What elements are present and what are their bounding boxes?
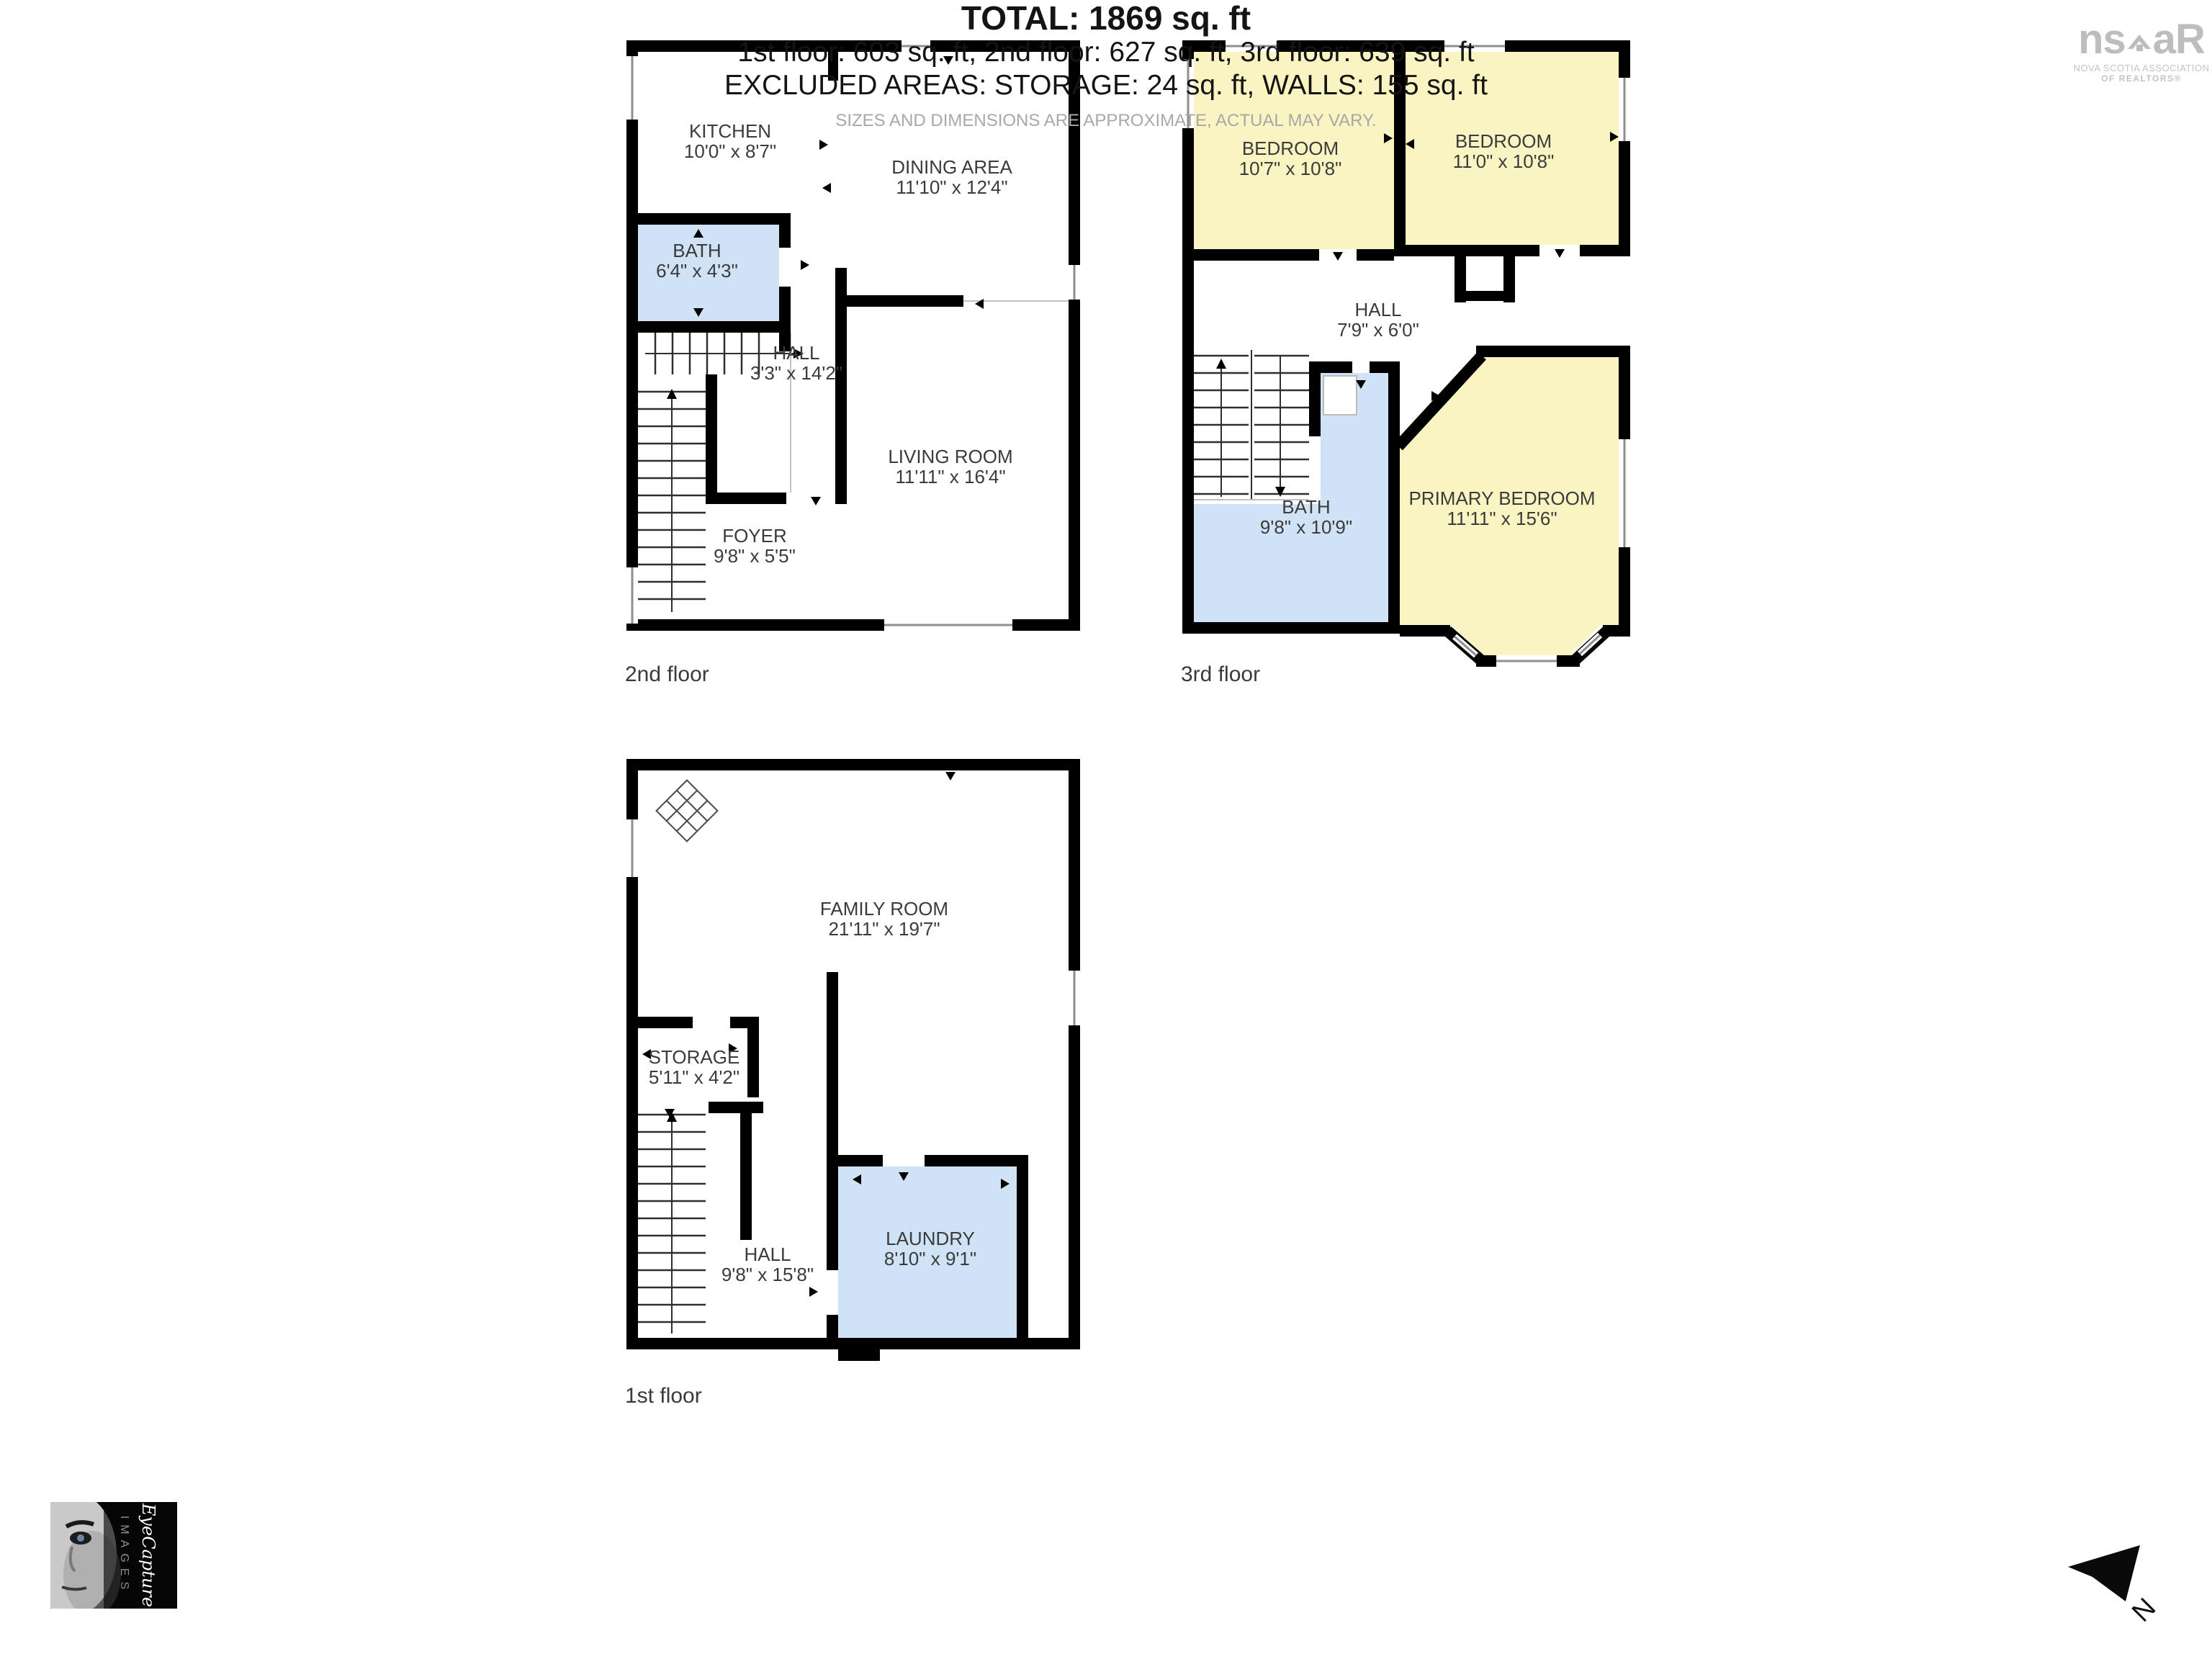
room-label-hall-2nd: HALL: [773, 342, 819, 364]
room-label-primary-bedroom: PRIMARY BEDROOM: [1408, 487, 1595, 509]
credit-caps-text: IMAGES: [117, 1502, 130, 1609]
room-dims-bath-3rd: 9'8" x 10'9": [1260, 516, 1352, 538]
room-dims-hall-2nd: 3'3" x 14'2": [750, 362, 842, 384]
credit-script-text: EyeCapture: [138, 1502, 158, 1609]
room-dims-hall-1st: 9'8" x 15'8": [721, 1264, 814, 1285]
room-dims-laundry: 8'10" x 9'1": [884, 1248, 976, 1269]
room-dims-primary-bedroom: 11'11" x 15'6": [1447, 508, 1557, 529]
staircase-3rd: [1194, 350, 1309, 500]
room-label-foyer: FOYER: [722, 525, 787, 547]
north-arrow-icon: N: [2068, 1545, 2169, 1646]
room-dims-bedroom-left: 10'7" x 10'8": [1239, 158, 1342, 179]
room-label-bath-2nd: BATH: [673, 240, 721, 261]
caption-1st-floor: 1st floor: [625, 1384, 702, 1408]
floor-plan-1st: FAMILY ROOM 21'11" x 19'7" STORAGE 5'11"…: [624, 755, 1084, 1363]
room-label-hall-1st: HALL: [744, 1244, 791, 1265]
room-dims-kitchen: 10'0" x 8'7": [684, 140, 776, 162]
room-label-living: LIVING ROOM: [888, 446, 1012, 467]
area-summary: TOTAL: 1869 sq. ft 1st floor: 603 sq. ft…: [0, 0, 2212, 135]
floor-plan-page: KITCHEN 10'0" x 8'7" DINING AREA 11'10" …: [0, 0, 2212, 1659]
excluded-areas: EXCLUDED AREAS: STORAGE: 24 sq. ft, WALL…: [0, 69, 2212, 102]
room-dims-family-room: 21'11" x 19'7": [828, 918, 940, 940]
north-label: N: [2126, 1593, 2162, 1628]
room-label-hall-3rd: HALL: [1354, 299, 1401, 320]
room-dims-bath-2nd: 6'4" x 4'3": [656, 260, 738, 282]
room-label-storage: STORAGE: [649, 1046, 740, 1068]
caption-3rd-floor: 3rd floor: [1181, 662, 1260, 687]
room-dims-dining: 11'10" x 12'4": [896, 176, 1007, 198]
room-dims-storage: 5'11" x 4'2": [649, 1066, 739, 1088]
disclaimer-text: SIZES AND DIMENSIONS ARE APPROXIMATE, AC…: [0, 107, 2212, 135]
room-label-family-room: FAMILY ROOM: [820, 898, 948, 920]
room-dims-bedroom-right: 11'0" x 10'8": [1453, 150, 1555, 172]
room-dims-foyer: 9'8" x 5'5": [714, 545, 796, 567]
room-label-bedroom-left: BEDROOM: [1242, 138, 1339, 159]
fireplace-icon: [657, 781, 718, 842]
caption-2nd-floor: 2nd floor: [625, 662, 709, 687]
room-label-bath-3rd: BATH: [1282, 496, 1330, 518]
room-label-laundry: LAUNDRY: [886, 1228, 975, 1249]
room-labels-1st: FAMILY ROOM 21'11" x 19'7" STORAGE 5'11"…: [649, 898, 976, 1285]
staircase-1st: [638, 1112, 706, 1334]
room-label-dining: DINING AREA: [891, 156, 1012, 178]
room-dims-hall-3rd: 7'9" x 6'0": [1337, 319, 1419, 341]
room-dims-living: 11'11" x 16'4": [895, 466, 1005, 487]
photographer-logo: EyeCapture IMAGES: [50, 1502, 177, 1609]
per-floor-areas: 1st floor: 603 sq. ft, 2nd floor: 627 sq…: [0, 36, 2212, 69]
total-area: TOTAL: 1869 sq. ft: [0, 0, 2212, 36]
